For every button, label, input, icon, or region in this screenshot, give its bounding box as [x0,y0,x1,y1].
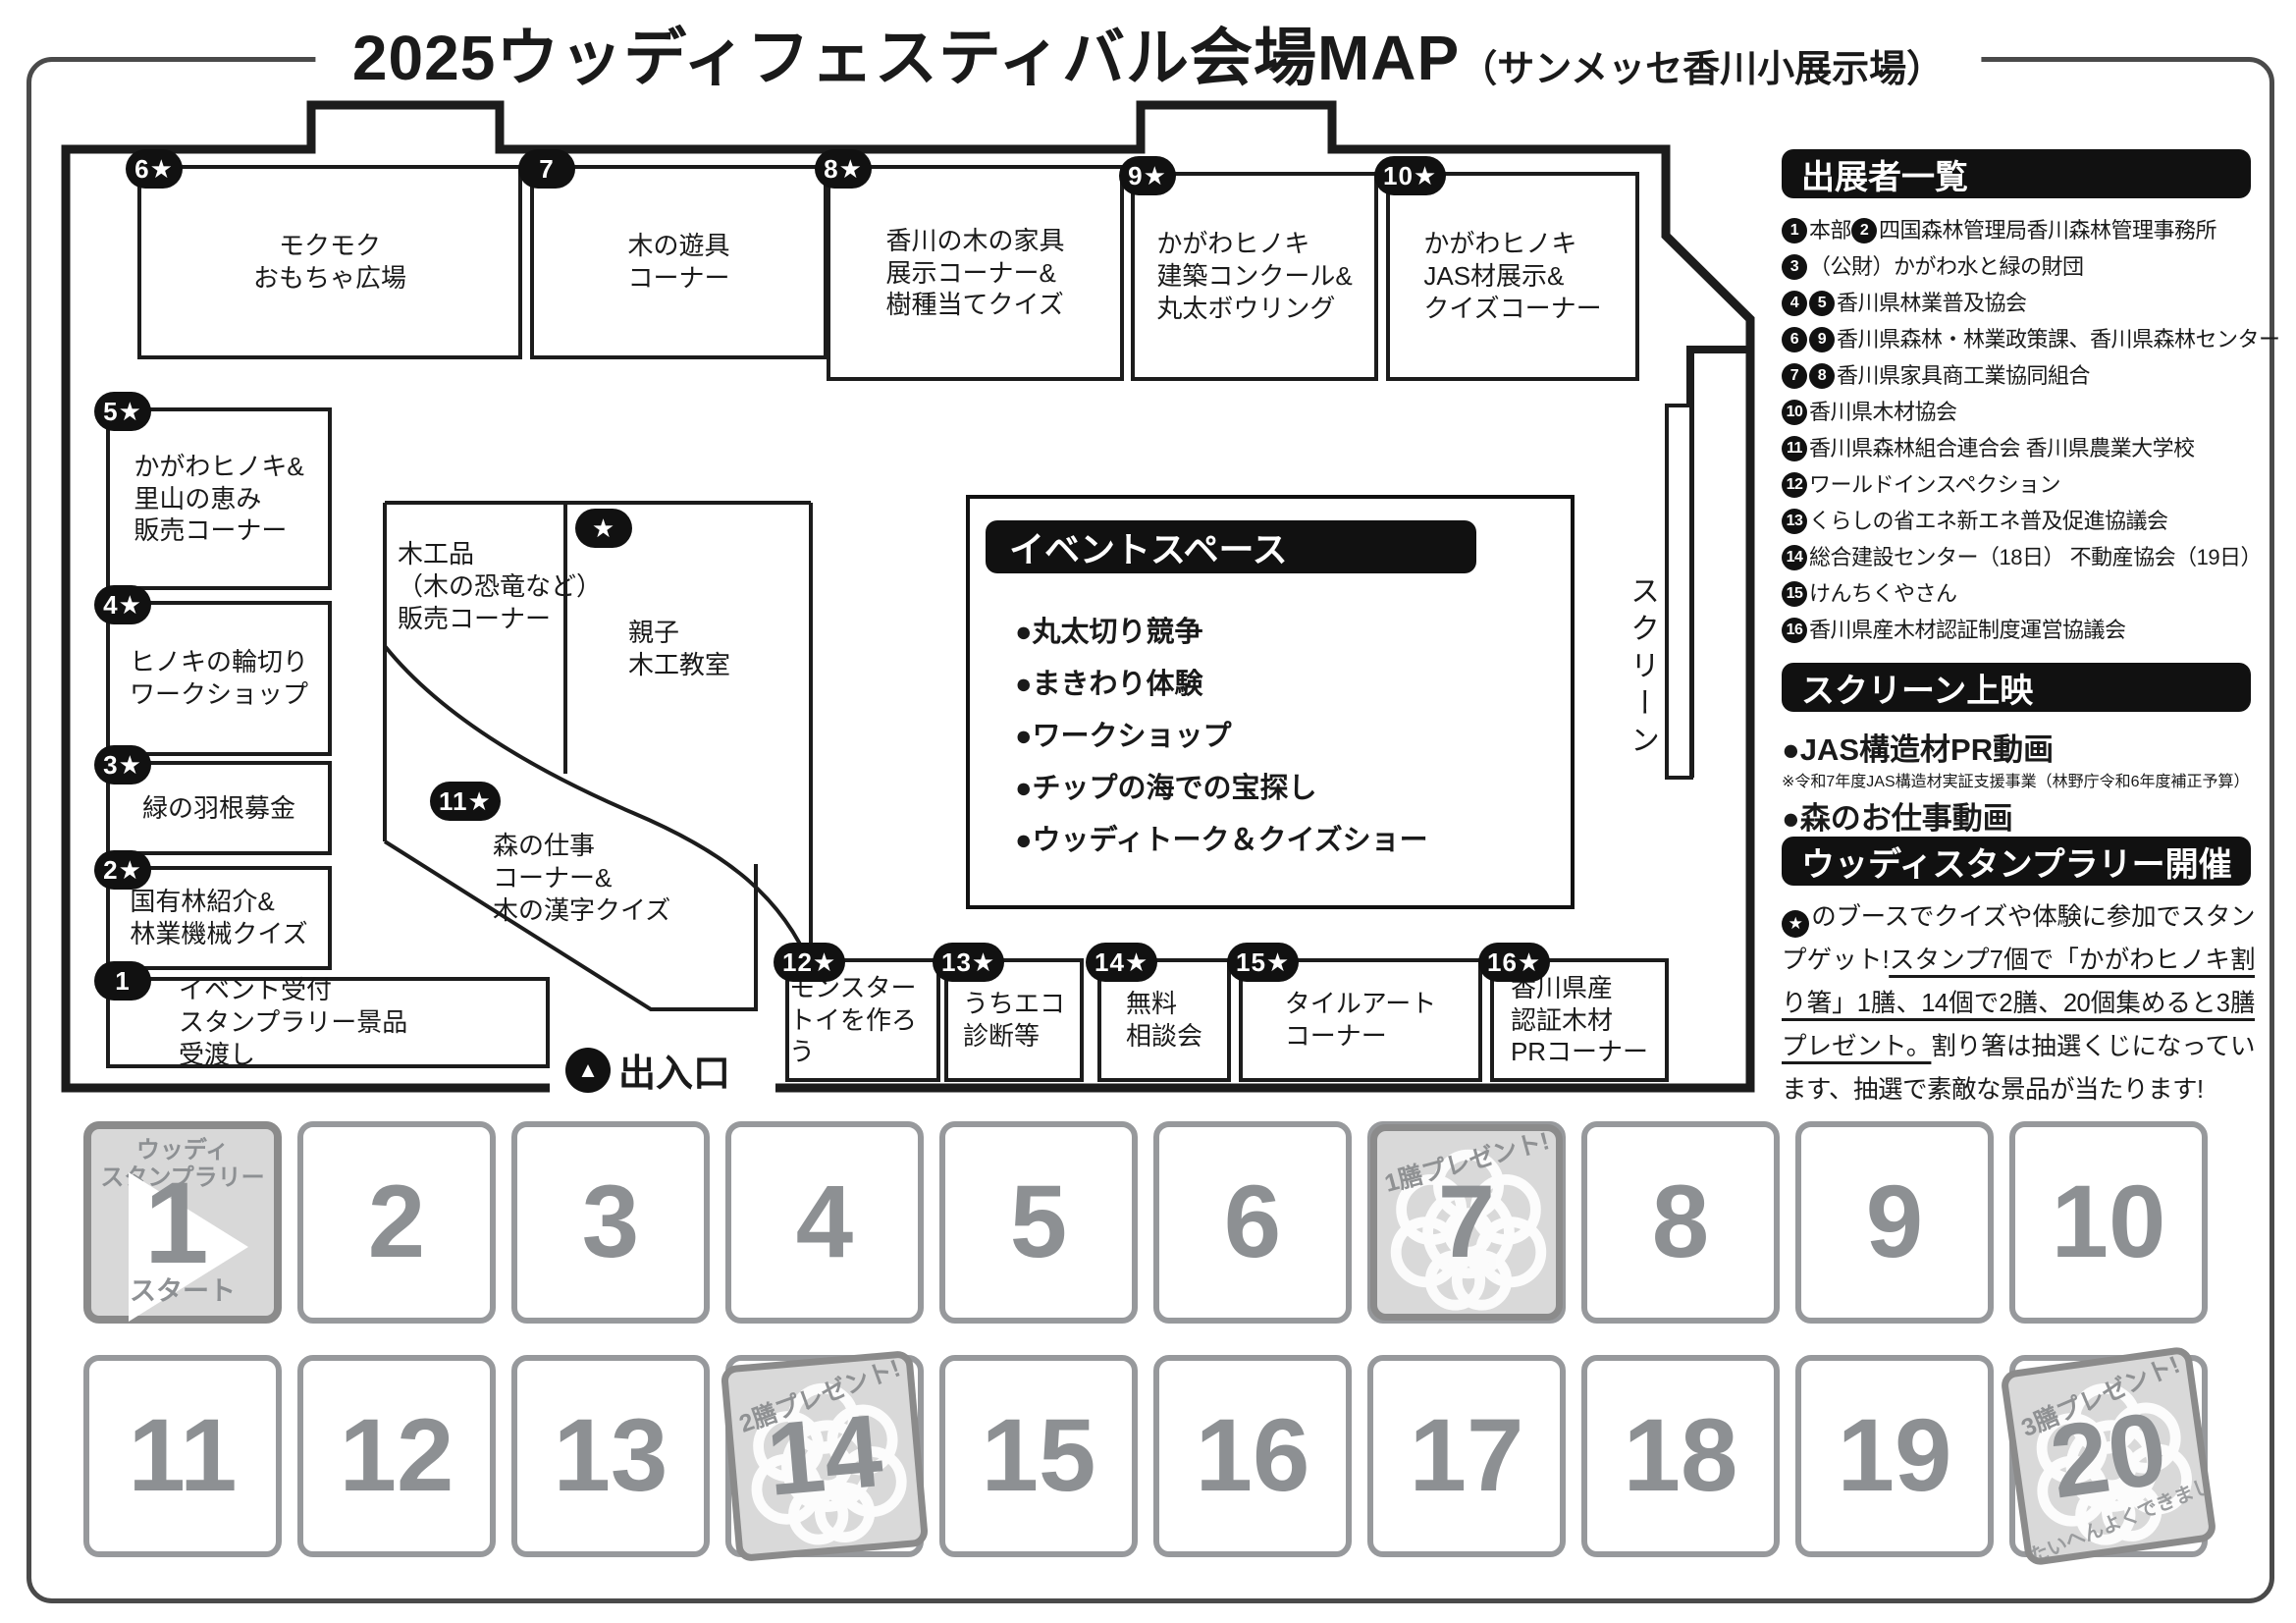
booth-box-5: かがわヒノキ& 里山の恵み 販売コーナー [106,407,332,590]
exhibitor-name: （公財）かがわ水と緑の財団 [1809,248,2084,285]
exhibitor-number-badge-10: 10 [1782,400,1807,425]
stamp-cell-9: 9 [1795,1121,1994,1324]
stamp-cell-6: 6 [1153,1121,1352,1324]
exhibitor-item-9: 14総合建設センター（18日） 不動産協会（19日） [1782,539,2251,575]
booth-label-14: 無料 相談会 [1126,988,1202,1053]
screen-wall [1690,350,1750,778]
stamp-number-16: 16 [1159,1361,1346,1551]
stamp-cell-8: 8 [1581,1121,1780,1324]
stamp-cell-11: 11 [83,1355,282,1557]
booth-label-7: 木の遊具 コーナー [627,230,729,295]
booth-number-badge-13: 13★ [933,943,1004,982]
stamp-number-8: 8 [1587,1127,1774,1318]
exhibitor-name: 香川県林業普及協会 [1837,285,2027,321]
exhibitor-number-badge-6: 6 [1782,327,1807,352]
stamp-cell-15: 15 [939,1355,1138,1557]
stamp-number-12: 12 [303,1361,490,1551]
exhibitor-item-10: 15けんちくやさん [1782,575,2251,612]
booth-number-badge-11: 11★ [430,782,501,821]
area-label-2: 森の仕事 コーナー& 木の漢字クイズ [493,830,670,927]
stamp-cell-18: 18 [1581,1355,1780,1557]
booth-label-9: かがわヒノキ 建築コンクール& 丸太ボウリング [1156,228,1352,324]
exhibitor-item-8: 13くらしの省エネ新エネ普及促進協議会 [1782,503,2251,539]
stamp-number-15: 15 [945,1361,1132,1551]
exhibitor-number-badge-14: 14 [1782,545,1807,570]
stamp-number-18: 18 [1587,1361,1774,1551]
star-icon: ★ [1782,910,1809,938]
stamp-number-17: 17 [1373,1361,1560,1551]
stamp-cell-13: 13 [511,1355,710,1557]
booth-label-4: ヒノキの輪切り ワークショップ [130,646,308,711]
stamp-number-11: 11 [89,1361,276,1551]
stamp-cell-1: ウッディ スタンプラリー1スタート [83,1121,282,1324]
stamp-cell-3: 3 [511,1121,710,1324]
booth-number-badge-10: 10★ [1374,156,1446,195]
exhibitor-name: くらしの省エネ新エネ普及促進協議会 [1809,503,2168,539]
exhibitor-name: ワールドインスペクション [1809,466,2060,503]
exhibitor-name: けんちくやさん [1809,575,1957,612]
booth-label-15: タイルアート コーナー [1285,988,1436,1053]
entrance-label: 出入口 [618,1043,730,1097]
booth-label-16: 香川県産 認証木材 PRコーナー [1511,972,1648,1068]
booth-box-7: 木の遊具 コーナー [530,165,828,359]
booth-label-10: かがわヒノキ JAS材展示& クイズコーナー [1423,228,1601,324]
screening-jas-note: ※令和7年度JAS構造材実証支援事業（林野庁令和6年度補正予算） [1782,768,2250,791]
booth-box-4: ヒノキの輪切り ワークショップ [106,601,332,756]
exhibitor-number-badge-15: 15 [1782,581,1807,607]
area-label-1: 親子 木工教室 [628,617,730,681]
booth-label-13: うちエコ 診断等 [963,988,1065,1053]
stamp-number-19: 19 [1801,1361,1988,1551]
event-item-0: ●丸太切り競争 [1015,607,1428,659]
exhibitor-name: 香川県家具商工業協同組合 [1837,357,2090,394]
exhibitor-number-badge-13: 13 [1782,509,1807,534]
booth-label-1: イベント受付 スタンプラリー景品 受渡し [179,974,407,1070]
booth-box-9: かがわヒノキ 建築コンクール& 丸太ボウリング [1131,172,1378,381]
booth-label-5: かがわヒノキ& 里山の恵み 販売コーナー [133,451,303,547]
booth-label-3: 緑の羽根募金 [142,792,295,825]
exhibitor-item-0: 1本部 2四国森林管理局香川森林管理事務所 [1782,212,2251,248]
booth-number-badge-1: 1 [94,961,151,1001]
stamp-cell-5: 5 [939,1121,1138,1324]
stamp-cell-12: 12 [297,1355,496,1557]
stamp-cell-16: 16 [1153,1355,1352,1557]
event-item-4: ●ウッディトーク＆クイズショー [1015,815,1428,867]
exhibitor-number-badge-11: 11 [1782,436,1807,461]
exhibitor-item-4: 78香川県家具商工業協同組合 [1782,357,2251,394]
exhibitor-number-badge-16: 16 [1782,618,1807,643]
entrance-marker: ▲ 出入口 [565,1043,730,1097]
stamp-start-label: スタート [91,1270,274,1308]
stamp-cell-20: 203膳プレゼント!たいへんよくできました! [2009,1355,2208,1557]
stamp-cell-17: 17 [1367,1355,1566,1557]
stamp-cell-19: 19 [1795,1355,1994,1557]
exhibitor-name: 本部 [1809,212,1851,248]
screening-jas-title: ●JAS構造材PR動画 [1782,725,2054,769]
stamp-cell-14: 142膳プレゼント! [725,1355,924,1557]
booth-label-6: モクモク おもちゃ広場 [253,230,406,295]
booth-number-badge-9: 9★ [1119,156,1176,195]
stamp-cell-10: 10 [2009,1121,2208,1324]
screening-header: スクリーン上映 [1782,663,2251,712]
booth-number-badge-5: 5★ [94,392,151,431]
booth-box-10: かがわヒノキ JAS材展示& クイズコーナー [1386,172,1639,381]
entrance-triangle-icon: ▲ [565,1048,611,1093]
stamp-rally-header: ウッディスタンプラリー開催 [1782,837,2251,886]
event-space-box: イベントスペース ●丸太切り競争●まきわり体験●ワークショップ●チップの海での宝… [966,495,1575,909]
booth-box-8: 香川の木の家具 展示コーナー& 樹種当てクイズ [827,165,1124,381]
stamp-cell-4: 4 [725,1121,924,1324]
exhibitor-number-badge-3: 3 [1782,254,1807,280]
stamp-prize-card-20: 203膳プレゼント!たいへんよくできました! [2000,1345,2217,1566]
screening-forest-title: ●森のお仕事動画 [1782,793,2013,838]
event-space-items: ●丸太切り競争●まきわり体験●ワークショップ●チップの海での宝探し●ウッディトー… [1015,607,1428,867]
exhibitor-name: 四国森林管理局香川森林管理事務所 [1879,212,2216,248]
booth-label-12: モンスター トイを作ろう [789,972,936,1068]
booth-label-8: 香川の木の家具 展示コーナー& 樹種当てクイズ [885,225,1064,321]
area-label-0: 木工品 （木の恐竜など） 販売コーナー [398,538,602,635]
booth-number-badge-4: 4★ [94,585,151,624]
exhibitor-item-6: 11香川県森林組合連合会 香川県農業大学校 [1782,430,2251,466]
exhibitor-number-badge-1: 1 [1782,218,1807,243]
event-item-2: ●ワークショップ [1015,711,1428,763]
venue-map-flyer: 2025ウッディフェスティバル会場MAP （サンメッセ香川小展示場） モクモク … [0,0,2296,1623]
exhibitor-name: 香川県森林組合連合会 香川県農業大学校 [1809,430,2195,466]
exhibitors-header: 出展者一覧 [1782,149,2251,198]
booth-number-badge-7: 7 [518,149,575,189]
stamp-number-2: 2 [303,1127,490,1318]
exhibitor-number-badge-5: 5 [1809,291,1835,316]
exhibitor-name: 総合建設センター（18日） 不動産協会（19日） [1809,539,2262,575]
exhibitor-number-badge-12: 12 [1782,472,1807,498]
exhibitor-name: 香川県木材協会 [1809,394,1957,430]
booth-number-badge-3: 3★ [94,745,151,784]
exhibitor-item-7: 12ワールドインスペクション [1782,466,2251,503]
stamp-number-4: 4 [731,1127,918,1318]
booth-number-badge-12: 12★ [774,943,845,982]
stamp-prize-card-7: 71膳プレゼント! [1370,1124,1563,1321]
stamp-number-13: 13 [517,1361,704,1551]
screen-label: スクリーン [1620,575,1663,762]
stamp-number-5: 5 [945,1127,1132,1318]
exhibitor-name: 香川県森林・林業政策課、香川県森林センター [1837,321,2280,357]
exhibitor-item-11: 16香川県産木材認証制度運営協議会 [1782,612,2251,648]
exhibitor-number-badge-9: 9 [1809,327,1835,352]
stamp-rally-paragraph: ★のブースでクイズや体験に参加でスタンプゲット!スタンプ7個で「かがわヒノキ割り… [1782,895,2255,1111]
booth-number-badge-14: 14★ [1086,943,1157,982]
event-item-1: ●まきわり体験 [1015,659,1428,711]
exhibitor-name: 香川県産木材認証制度運営協議会 [1809,612,2126,648]
booth-label-2: 国有林紹介& 林業機械クイズ [130,886,307,950]
stamp-number-3: 3 [517,1127,704,1318]
exhibitor-number-badge-7: 7 [1782,363,1807,389]
stamp-cell-2: 2 [297,1121,496,1324]
stamp-prize-card-14: 142膳プレゼント! [721,1350,930,1562]
star-badge: ★ [575,509,632,548]
booth-box-1: イベント受付 スタンプラリー景品 受渡し [106,977,550,1068]
stamp-number-9: 9 [1801,1127,1988,1318]
exhibitor-number-badge-4: 4 [1782,291,1807,316]
exhibitor-number-badge-2: 2 [1851,218,1877,243]
exhibitor-item-5: 10香川県木材協会 [1782,394,2251,430]
booth-number-badge-16: 16★ [1478,943,1550,982]
event-space-header: イベントスペース [986,520,1476,573]
booth-number-badge-2: 2★ [94,850,151,890]
stamp-number-10: 10 [2015,1127,2202,1318]
booth-number-badge-6: 6★ [126,149,183,189]
booth-number-badge-8: 8★ [815,149,872,189]
stamp-number-6: 6 [1159,1127,1346,1318]
event-item-3: ●チップの海での宝探し [1015,763,1428,815]
screen-panel [1667,406,1691,778]
exhibitor-item-3: 69香川県森林・林業政策課、香川県森林センター [1782,321,2251,357]
exhibitor-item-1: 3（公財）かがわ水と緑の財団 [1782,248,2251,285]
booth-box-6: モクモク おもちゃ広場 [137,165,522,359]
stamp-cell-7: 71膳プレゼント! [1367,1121,1566,1324]
exhibitor-item-2: 45香川県林業普及協会 [1782,285,2251,321]
booth-number-badge-15: 15★ [1227,943,1299,982]
exhibitor-list: 1本部 2四国森林管理局香川森林管理事務所3（公財）かがわ水と緑の財団45香川県… [1782,212,2251,648]
exhibitor-number-badge-8: 8 [1809,363,1835,389]
